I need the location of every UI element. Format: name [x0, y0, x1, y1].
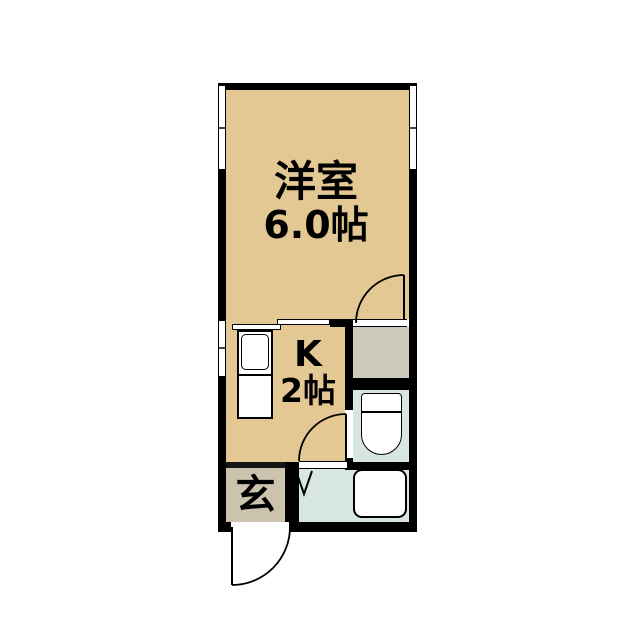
kitchen-name: K — [273, 336, 343, 374]
entrance-step-line — [226, 462, 285, 468]
exterior-wall-top — [218, 83, 417, 90]
toilet-tank-line — [362, 411, 401, 413]
wall-entrance-washroom — [285, 462, 299, 522]
sliding-door-panel-lower — [232, 324, 281, 330]
doorway-entrance — [230, 522, 290, 532]
window-kitchen-left — [218, 320, 226, 377]
kitchen-size: 2帖 — [273, 374, 343, 409]
window-west-room-right — [409, 85, 417, 170]
bathtub — [353, 469, 407, 518]
floorplan-canvas: 洋室 6.0帖 K 2帖 玄 — [0, 0, 640, 640]
doorway-washroom — [299, 461, 347, 469]
kitchen-counter-divider — [238, 374, 272, 376]
wall-closet-toilet — [345, 378, 417, 390]
entrance-door-arc — [232, 527, 290, 585]
toilet — [361, 393, 402, 455]
closet-floor — [353, 327, 409, 378]
window-west-room-left — [218, 85, 226, 170]
western-room-label: 洋室 6.0帖 — [236, 160, 396, 246]
western-room-name: 洋室 — [236, 160, 396, 204]
wall-toilet-washroom — [347, 462, 417, 470]
kitchen-label: K 2帖 — [273, 336, 343, 408]
kitchen-sink-bowl — [241, 334, 269, 370]
western-room-size: 6.0帖 — [236, 206, 396, 246]
entrance-name: 玄 — [226, 474, 285, 516]
doorway-toilet — [345, 410, 353, 458]
wall-kitchen-closet — [345, 319, 353, 410]
entrance-label: 玄 — [226, 474, 285, 516]
sliding-door-panel-upper — [277, 319, 330, 325]
doorway-western-room-closet — [353, 319, 407, 327]
